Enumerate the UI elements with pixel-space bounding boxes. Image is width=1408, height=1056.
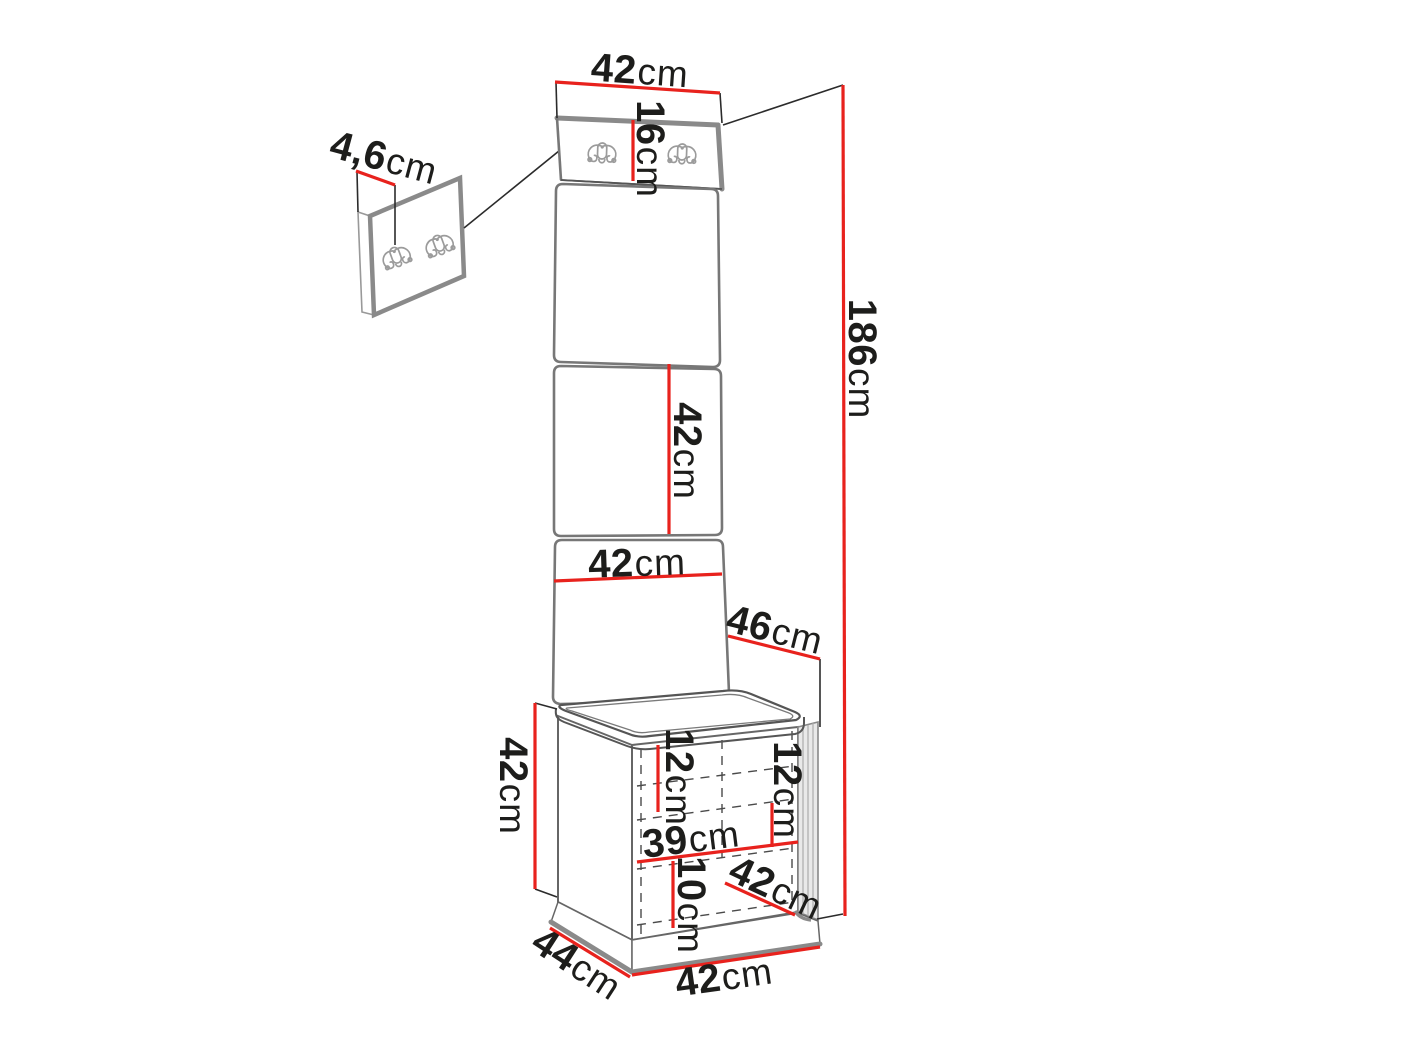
label-panel-top-width: 42cm — [590, 46, 691, 97]
label-compartment-left-height: 12cm — [657, 728, 701, 826]
label-bench-height: 42cm — [491, 737, 535, 835]
detail-pointer-line — [464, 142, 570, 228]
label-hook-panel-thickness: 4,6cm — [325, 123, 442, 194]
label-total-height: 186cm — [840, 299, 884, 420]
dim-line-total-height — [843, 85, 845, 916]
label-mid-panel-height: 42cm — [665, 402, 709, 500]
bench-left-face — [558, 716, 632, 940]
label-compartment-right-height: 12cm — [765, 741, 809, 839]
upholstered-panel-1 — [554, 184, 720, 367]
label-panel-width: 42cm — [587, 539, 686, 586]
furniture-dimension-diagram: 42cm 16cm 4,6cm 42cm 42cm 186cm 46cm 42c… — [0, 0, 1408, 1056]
label-hook-panel-height: 16cm — [628, 100, 672, 198]
hook-panel-detail — [358, 178, 464, 315]
label-bottom-compartment-height: 10cm — [669, 856, 713, 954]
diagram-canvas: 42cm 16cm 4,6cm 42cm 42cm 186cm 46cm 42c… — [0, 0, 1408, 1056]
label-seat-depth: 46cm — [722, 597, 828, 663]
